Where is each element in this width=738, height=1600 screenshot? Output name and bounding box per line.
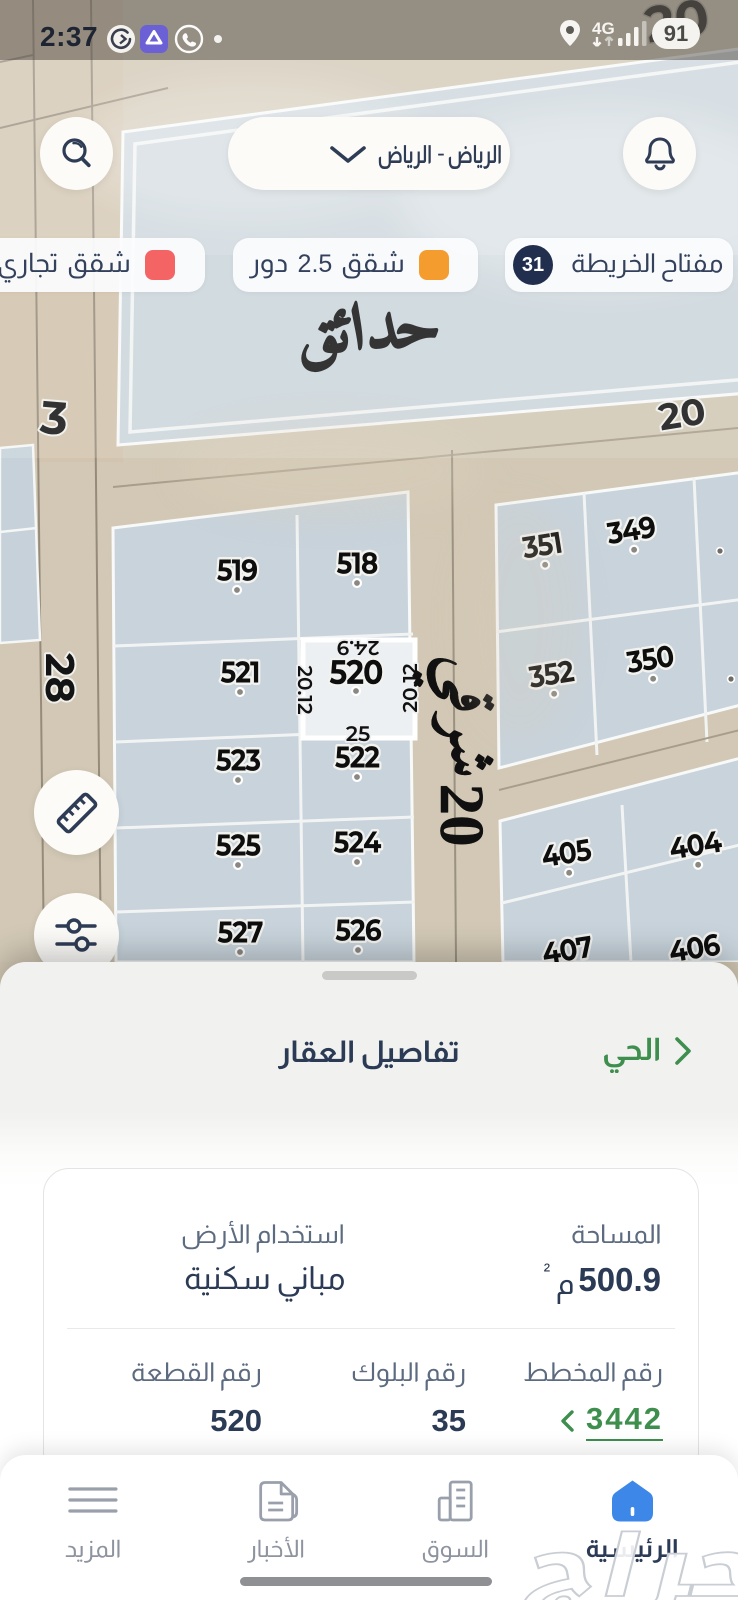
svg-text:4G: 4G (592, 19, 615, 38)
svg-text:91: 91 (664, 21, 688, 46)
svg-text:-: - (437, 140, 445, 166)
